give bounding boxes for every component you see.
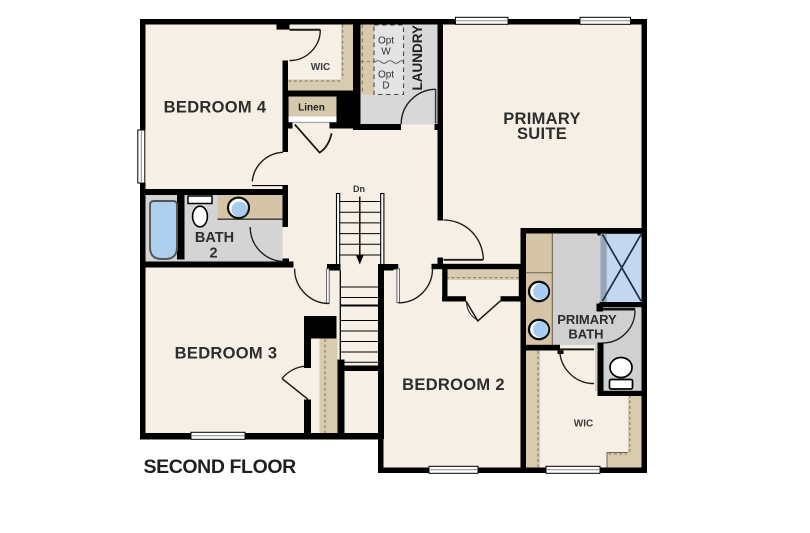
svg-text:BEDROOM 3: BEDROOM 3 [175, 345, 278, 363]
svg-text:WIC: WIC [311, 62, 330, 73]
svg-text:WIC: WIC [574, 419, 593, 430]
svg-text:BATH: BATH [568, 327, 603, 342]
svg-text:Linen: Linen [298, 103, 325, 114]
svg-text:SECOND FLOOR: SECOND FLOOR [144, 456, 297, 478]
svg-text:W: W [381, 47, 391, 58]
svg-text:PRIMARY: PRIMARY [557, 312, 617, 327]
svg-text:Dn: Dn [353, 184, 365, 194]
svg-text:Opt: Opt [378, 70, 394, 81]
svg-text:LAUNDRY: LAUNDRY [410, 25, 425, 91]
svg-text:BEDROOM 4: BEDROOM 4 [164, 99, 267, 117]
svg-text:D: D [382, 81, 389, 92]
svg-text:SUITE: SUITE [517, 125, 567, 143]
svg-text:BATH: BATH [195, 230, 234, 246]
svg-text:2: 2 [209, 246, 217, 262]
svg-text:BEDROOM 2: BEDROOM 2 [402, 376, 505, 394]
svg-text:Opt: Opt [378, 36, 394, 47]
